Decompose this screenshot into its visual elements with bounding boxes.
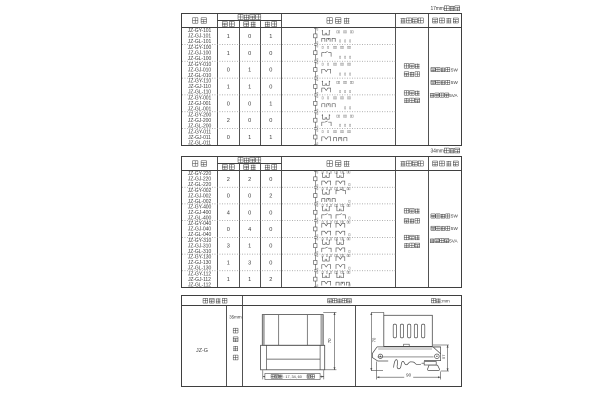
svg-text:2: 2 — [227, 177, 230, 183]
svg-text:0: 0 — [227, 194, 230, 200]
svg-text:0: 0 — [269, 118, 272, 124]
svg-text:JZ-GL-112: JZ-GL-112 — [188, 282, 211, 288]
svg-text:5W: 5W — [451, 80, 459, 85]
svg-text:0: 0 — [248, 101, 251, 107]
svg-text:1: 1 — [248, 68, 251, 74]
svg-text:3: 3 — [227, 244, 230, 250]
svg-text:0: 0 — [269, 51, 272, 57]
svg-text:1: 1 — [269, 34, 272, 40]
svg-text:70: 70 — [371, 337, 376, 342]
svg-text:0: 0 — [248, 194, 251, 200]
svg-text:5W: 5W — [451, 67, 459, 72]
svg-text:0: 0 — [248, 34, 251, 40]
svg-text:90: 90 — [406, 373, 411, 378]
svg-text:1: 1 — [227, 84, 230, 90]
svg-text:5VA: 5VA — [449, 93, 458, 98]
svg-text:0: 0 — [248, 118, 251, 124]
svg-text:0: 0 — [269, 244, 272, 250]
svg-text:0: 0 — [227, 68, 230, 74]
svg-text:0: 0 — [248, 51, 251, 57]
svg-text:57: 57 — [441, 354, 446, 359]
svg-text:35mm: 35mm — [229, 314, 242, 319]
svg-text:2: 2 — [248, 177, 251, 183]
svg-text:1: 1 — [227, 51, 230, 57]
svg-text:17mm: 17mm — [431, 6, 444, 12]
svg-text:1: 1 — [227, 260, 230, 266]
svg-text:0: 0 — [269, 68, 272, 74]
svg-text:1: 1 — [269, 135, 272, 141]
svg-text:34mm: 34mm — [431, 148, 444, 154]
svg-text:1: 1 — [248, 84, 251, 90]
svg-text:2: 2 — [269, 277, 272, 283]
svg-text:0: 0 — [227, 135, 230, 141]
svg-text:1: 1 — [248, 135, 251, 141]
svg-text:2: 2 — [227, 118, 230, 124]
svg-text:JZ-GL-011: JZ-GL-011 — [188, 140, 211, 146]
svg-text:4: 4 — [248, 227, 251, 233]
svg-text:0: 0 — [248, 210, 251, 216]
svg-text:0: 0 — [269, 177, 272, 183]
svg-text:JZ-G: JZ-G — [196, 348, 208, 354]
svg-text:3: 3 — [248, 260, 251, 266]
svg-text:0: 0 — [269, 227, 272, 233]
svg-text:: 17, 34, 60: : 17, 34, 60 — [283, 375, 301, 379]
svg-text:1: 1 — [227, 34, 230, 40]
svg-text:1: 1 — [269, 101, 272, 107]
svg-text:1: 1 — [227, 277, 230, 283]
svg-text:70: 70 — [327, 338, 332, 343]
svg-text:1: 1 — [248, 244, 251, 250]
svg-text:0: 0 — [227, 227, 230, 233]
svg-text:1: 1 — [248, 277, 251, 283]
svg-text:0: 0 — [227, 101, 230, 107]
svg-text:4: 4 — [227, 210, 230, 216]
svg-text:5VA: 5VA — [449, 238, 458, 243]
svg-text:0: 0 — [269, 210, 272, 216]
svg-text::mm: :mm — [441, 298, 450, 303]
svg-text:5W: 5W — [451, 226, 459, 231]
svg-text:0: 0 — [269, 84, 272, 90]
svg-text:2: 2 — [269, 194, 272, 200]
svg-text:5W: 5W — [451, 214, 459, 219]
svg-text:0: 0 — [269, 260, 272, 266]
